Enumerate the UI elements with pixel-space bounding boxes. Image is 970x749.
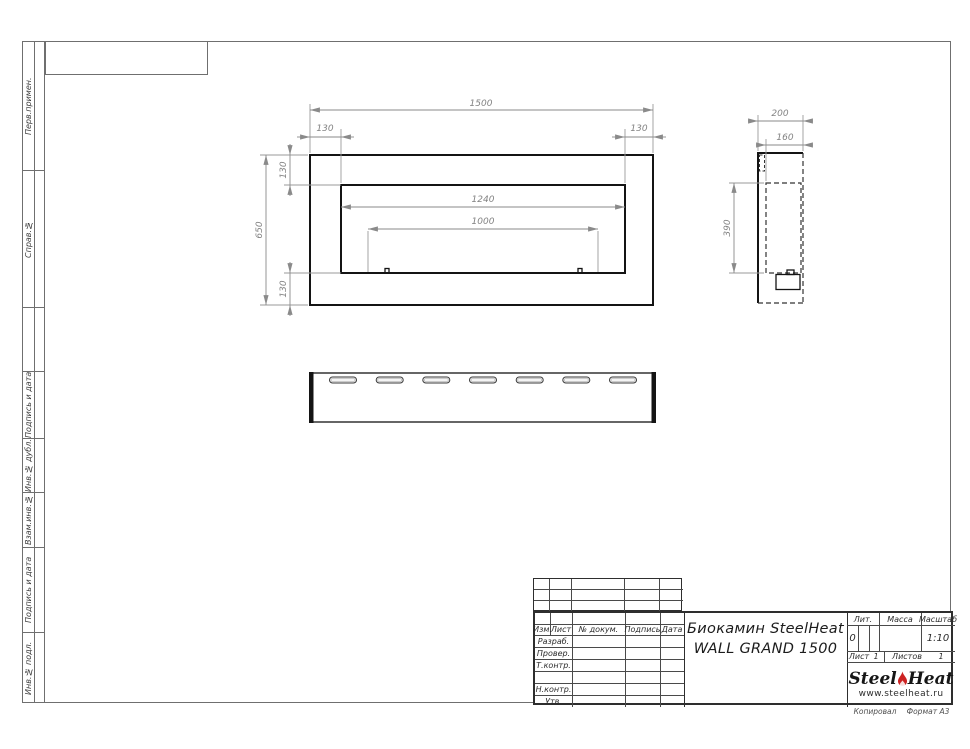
side-outer-visible [758, 153, 803, 303]
mass-value [879, 625, 921, 651]
dim-opening-height: 390 [723, 219, 733, 236]
front-outer-body [310, 155, 653, 305]
dim-burner-width: 1000 [472, 217, 495, 227]
document-title-line2: WALL GRAND 1500 [684, 639, 847, 659]
row-approved: Утв. [535, 695, 572, 707]
side-flange-hidden [760, 155, 765, 171]
dim-flange-bottom: 130 [279, 280, 289, 297]
side-view: 200 160 390 [723, 109, 813, 303]
col-izm: Изм. [535, 624, 550, 635]
dim-inner-depth: 160 [776, 133, 793, 143]
row-ncontrol: Н.контр. [535, 683, 572, 695]
burner-slot [376, 377, 403, 383]
revision-table [533, 578, 682, 611]
side-opening-hidden [766, 183, 801, 273]
mass-label: Масса [879, 613, 921, 625]
document-title-line1: Биокамин SteelHeat [684, 619, 847, 639]
sheets-value: 1 [933, 651, 949, 662]
title-block: Изм. Лист № докум. Подпись Дата Разраб. … [533, 611, 953, 705]
dim-flange-right: 130 [630, 124, 647, 134]
front-view: 1500 130 130 650 130 130 [255, 99, 666, 316]
burner-slot [470, 377, 497, 383]
row-developed: Разраб. [535, 635, 572, 647]
dim-front-height: 650 [255, 221, 265, 238]
burner-slot [330, 377, 357, 383]
dim-flange-left: 130 [316, 124, 333, 134]
burner-slot [423, 377, 450, 383]
sheet-label: Лист [847, 651, 871, 662]
company-logo-cell: Steel Heat www.steelheat.ru [847, 662, 955, 707]
scale-value: 1:10 [921, 625, 955, 651]
lit-value: 0 [847, 625, 858, 651]
bottom-view-slots [330, 377, 637, 383]
lit-label: Лит. [847, 613, 879, 625]
logo-word-heat: Heat [908, 671, 954, 688]
burner-slot [563, 377, 590, 383]
col-doc: № докум. [572, 624, 625, 635]
burner-slot [610, 377, 637, 383]
bottom-edge-right [652, 372, 657, 423]
drawing-sheet: Перв.примен. Справ.№ Подпись и дата Инв.… [0, 0, 970, 749]
document-title: Биокамин SteelHeat WALL GRAND 1500 [684, 619, 847, 659]
dim-opening-width: 1240 [472, 195, 495, 205]
scale-label: Масштаб [921, 613, 955, 625]
bottom-edge-left [309, 372, 314, 423]
col-sign: Подпись [625, 624, 660, 635]
sheets-label: Листов [886, 651, 928, 662]
col-list: Лист [550, 624, 572, 635]
dim-front-width: 1500 [470, 99, 493, 109]
burner-slot [516, 377, 543, 383]
dim-flange-top: 130 [279, 161, 289, 178]
sheet-value: 1 [869, 651, 883, 662]
logo-url: www.steelheat.ru [859, 689, 944, 699]
row-checked: Провер. [535, 647, 572, 659]
steelheat-logo: Steel Heat [849, 671, 954, 689]
bottom-view [309, 372, 656, 423]
row-tcontrol: Т.контр. [535, 659, 572, 671]
side-burner-tab [787, 270, 794, 275]
format-label: Формат А3 [900, 707, 956, 716]
side-burner-block [776, 275, 800, 290]
col-date: Дата [660, 624, 684, 635]
dim-depth: 200 [771, 109, 788, 119]
logo-word-steel: Steel [849, 671, 897, 688]
